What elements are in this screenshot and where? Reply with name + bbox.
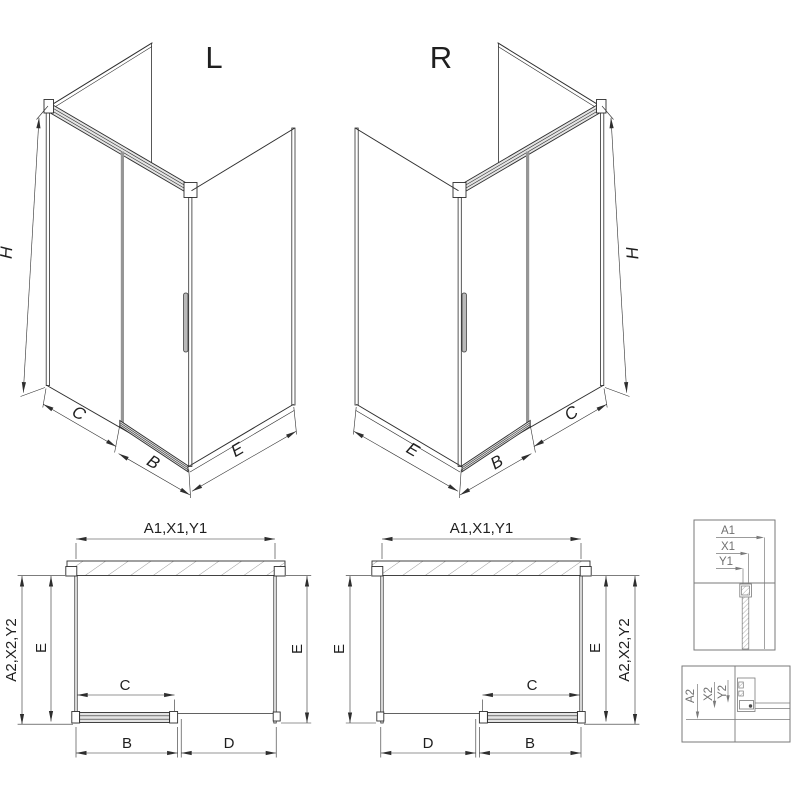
plan-right-view: A1,X1,Y1 A2,X2,Y2 E E C B D xyxy=(331,520,639,758)
plan-left-view: A1,X1,Y1 A2,X2,Y2 E E C B D xyxy=(3,520,311,758)
detail-wall-dim-y1: Y1 xyxy=(719,556,733,568)
detail-wall-dim-x1: X1 xyxy=(721,541,735,553)
iso-left-view: L H C B E xyxy=(0,40,297,498)
plan-right-dim-b: B xyxy=(525,735,535,752)
plan-right-dim-a1: A1,X1,Y1 xyxy=(450,520,513,537)
iso-left-label: L xyxy=(205,40,222,75)
plan-left-dim-c: C xyxy=(120,677,131,694)
plan-left-dim-a1: A1,X1,Y1 xyxy=(144,520,207,537)
detail-floor-dim-x2: X2 xyxy=(703,687,715,701)
plan-right-dim-a2: A2,X2,Y2 xyxy=(616,618,633,681)
plan-left-dim-e-far: E xyxy=(289,644,306,654)
wall-hatch-strip xyxy=(67,561,285,576)
plan-right-dim-e-inner: E xyxy=(587,643,604,653)
detail-wall-dim-a1: A1 xyxy=(721,525,735,537)
plan-right-dim-e-far: E xyxy=(331,644,348,654)
plan-left-dim-a2: A2,X2,Y2 xyxy=(3,618,20,681)
iso-left-dim-c: C xyxy=(69,402,90,425)
iso-right-dim-c: C xyxy=(561,402,582,425)
wall-hatch-strip xyxy=(372,561,590,576)
plan-right-dim-c: C xyxy=(527,677,538,694)
iso-right-dim-h: H xyxy=(623,246,643,260)
iso-right-dim-e: E xyxy=(403,439,423,461)
wall-profile-detail: A1 X1 Y1 xyxy=(694,520,775,650)
iso-right-view: R H C B E xyxy=(353,40,643,498)
shower-enclosure-technical-drawing: L H C B E R H C B E A1,X1,Y1 A2,X2,Y2 E … xyxy=(0,0,800,800)
plan-right-dim-d: D xyxy=(423,735,434,752)
detail-floor-dim-a2: A2 xyxy=(685,689,697,703)
iso-right-label: R xyxy=(430,40,452,75)
iso-left-dim-e: E xyxy=(228,438,248,460)
plan-left-dim-b: B xyxy=(122,735,132,752)
plan-left-dim-e-inner: E xyxy=(33,643,50,653)
iso-left-dim-h: H xyxy=(0,245,16,259)
floor-profile-detail: A2 X2 Y2 xyxy=(682,666,790,742)
plan-left-dim-d: D xyxy=(224,735,235,752)
